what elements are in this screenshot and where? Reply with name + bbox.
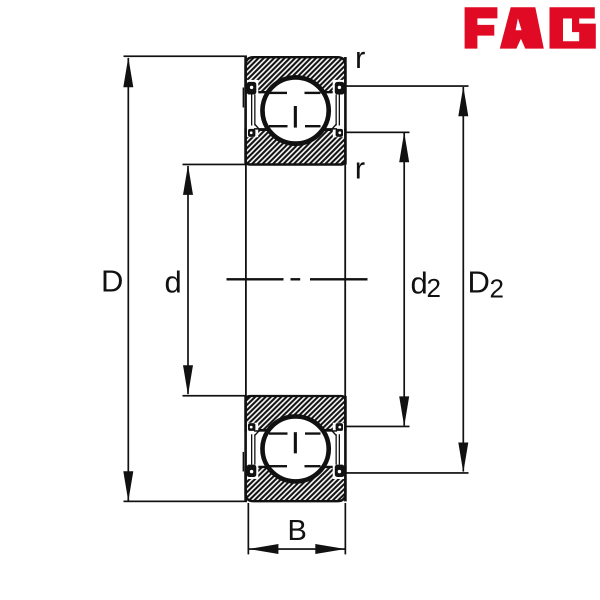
- svg-text:D: D: [101, 264, 123, 299]
- svg-text:d: d: [165, 265, 182, 300]
- svg-text:B: B: [288, 515, 307, 547]
- svg-text:d: d: [411, 266, 428, 301]
- svg-text:r: r: [355, 151, 365, 186]
- svg-text:2: 2: [490, 274, 504, 304]
- svg-text:r: r: [355, 40, 365, 75]
- svg-text:D: D: [468, 265, 490, 300]
- svg-text:2: 2: [427, 273, 441, 303]
